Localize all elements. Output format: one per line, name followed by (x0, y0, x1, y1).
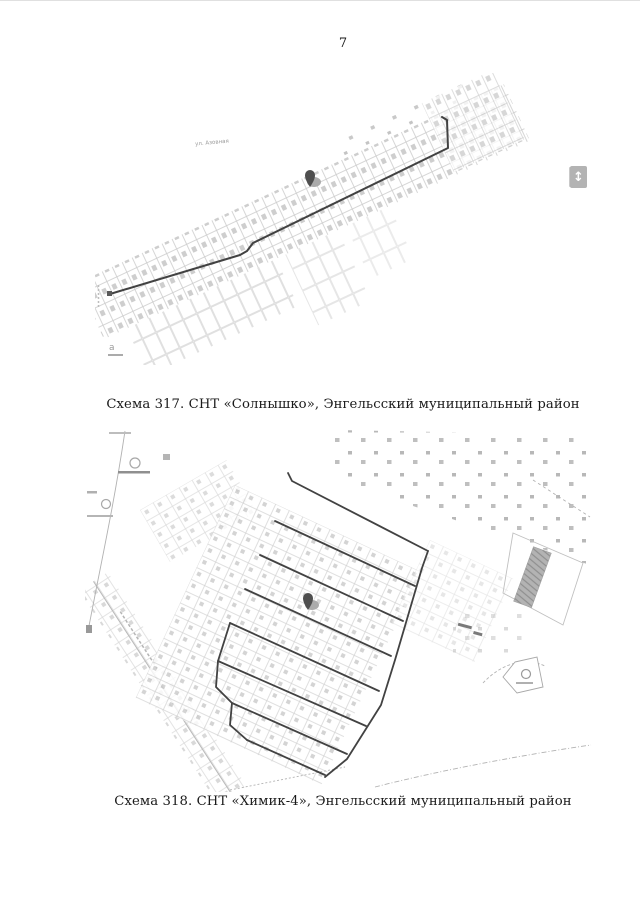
page-top-edge (0, 0, 640, 1)
scroll-indicator-icon[interactable]: ↕ (570, 166, 587, 188)
hatched-building (514, 547, 552, 608)
figure1-caption: Схема 317. СНТ «Солнышко», Энгельсский м… (46, 396, 640, 413)
corner-label-smudge (108, 354, 123, 356)
street-label: ул. Азовная (195, 139, 229, 148)
route-endpoint (107, 291, 112, 296)
building-scatter-small (453, 613, 523, 655)
map-solnyshko: ул. Азовная а (95, 73, 575, 365)
landmark-label-smudge (516, 682, 533, 684)
building-scatter (335, 430, 590, 565)
map-khimik4-svg (85, 425, 592, 792)
landmark-site (503, 657, 543, 693)
map-solnyshko-svg: ул. Азовная а (95, 73, 575, 365)
figure2-caption: Схема 318. СНТ «Химик-4», Энгельсский му… (46, 793, 640, 810)
corner-label: а (109, 343, 115, 353)
map-khimik4 (85, 425, 592, 792)
page-number: 7 (46, 36, 640, 52)
updown-arrow-glyph: ↕ (573, 170, 584, 185)
